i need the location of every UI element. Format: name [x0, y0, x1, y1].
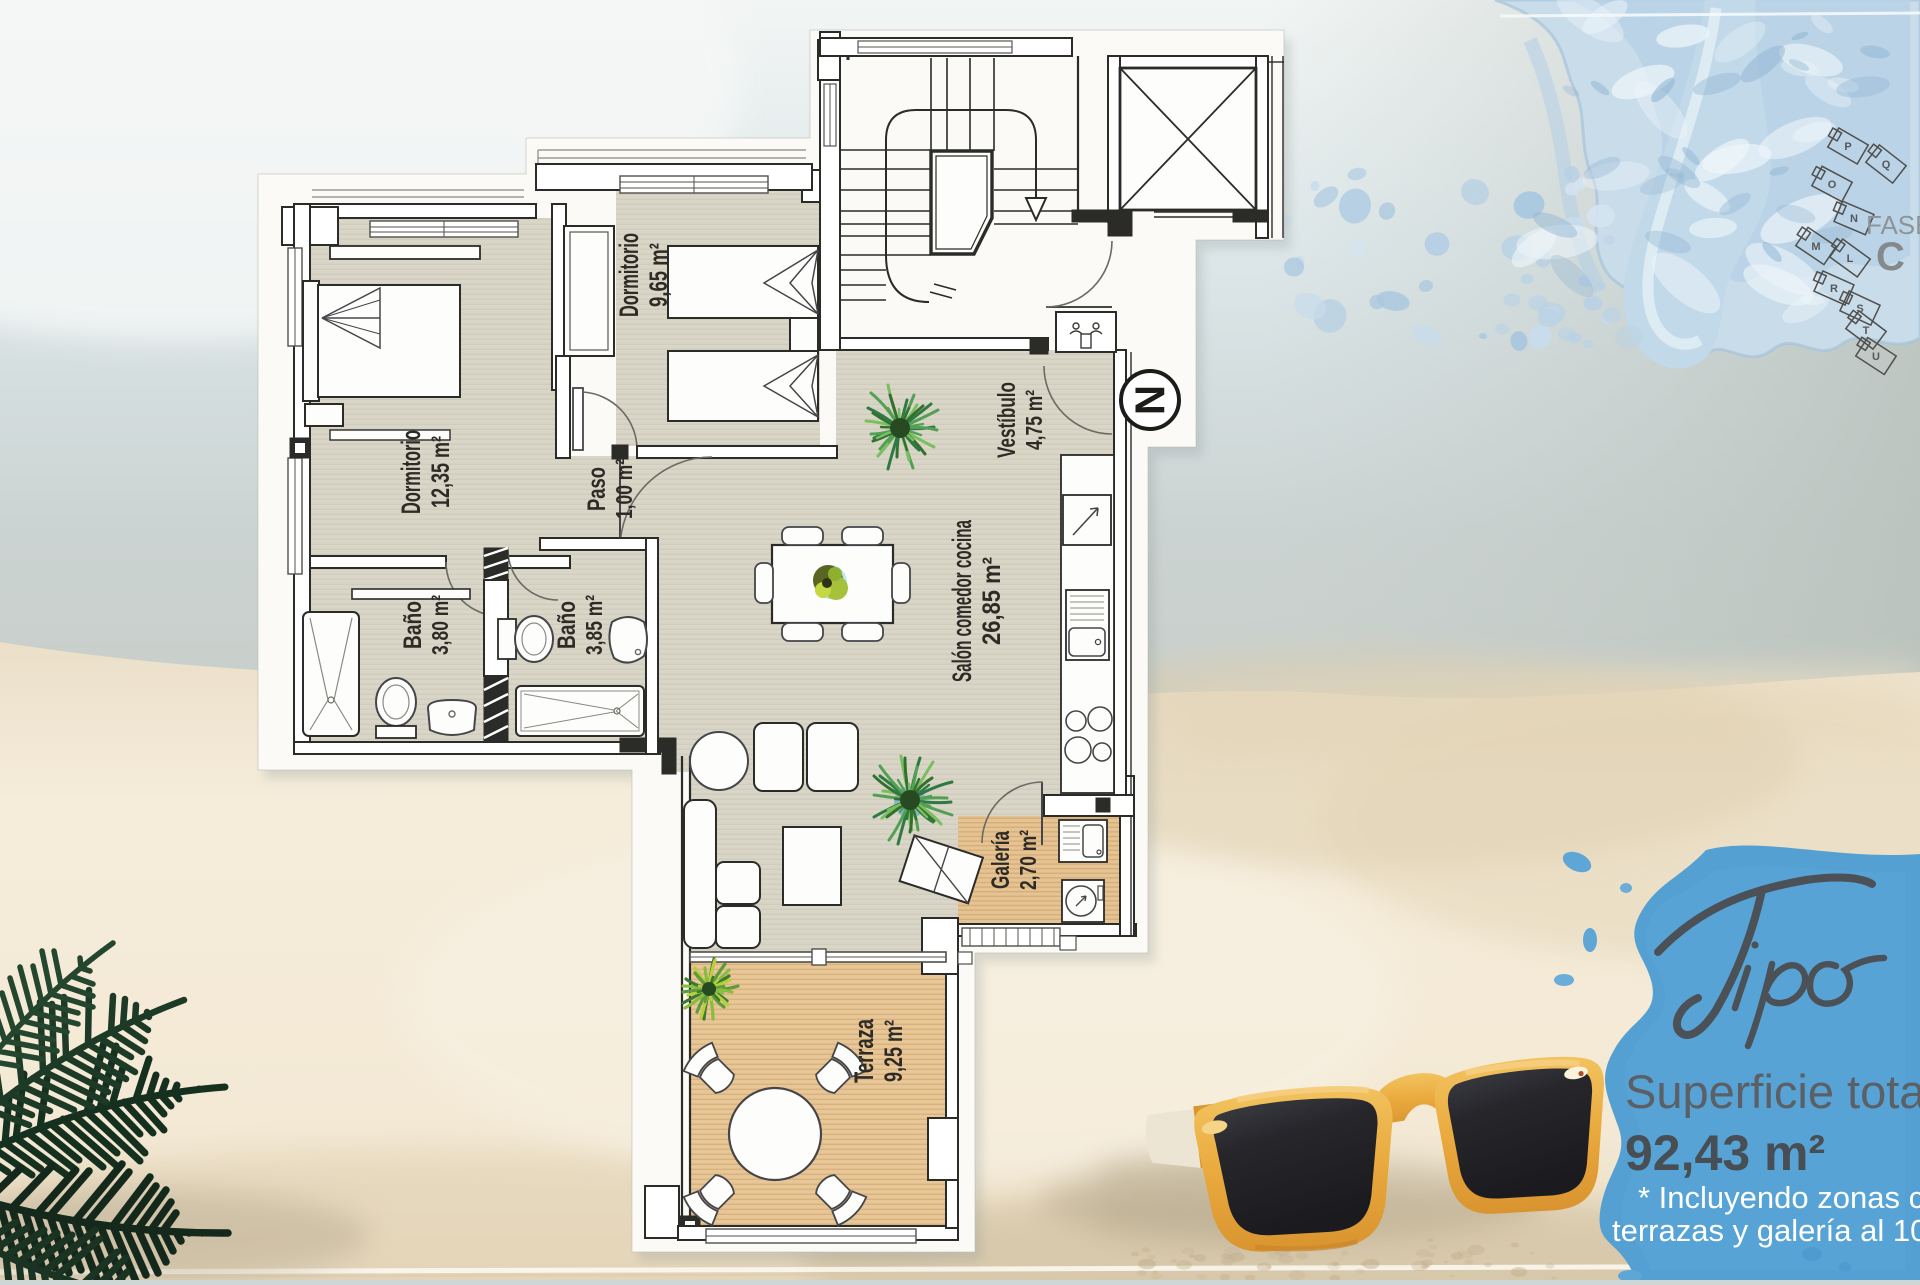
- svg-text:Dormitorio: Dormitorio: [396, 430, 426, 514]
- svg-text:T: T: [1863, 325, 1870, 337]
- svg-text:9,25 m²: 9,25 m²: [880, 1020, 908, 1082]
- svg-text:N: N: [1127, 385, 1174, 415]
- svg-text:4,75 m²: 4,75 m²: [1021, 390, 1047, 450]
- svg-text:2,70 m²: 2,70 m²: [1015, 830, 1041, 890]
- svg-text:Terraza: Terraza: [849, 1018, 879, 1083]
- svg-text:N: N: [1850, 213, 1858, 225]
- svg-text:92,43 m²: 92,43 m²: [1625, 1125, 1825, 1181]
- svg-text:Paso: Paso: [583, 467, 611, 511]
- svg-text:U: U: [1872, 351, 1880, 363]
- svg-text:Baño: Baño: [399, 601, 427, 649]
- svg-text:3,85 m²: 3,85 m²: [581, 595, 607, 655]
- svg-text:12,35 m²: 12,35 m²: [427, 436, 455, 508]
- svg-text:Dormitorio: Dormitorio: [614, 233, 644, 317]
- svg-text:3,80 m²: 3,80 m²: [427, 595, 453, 655]
- svg-text:26,85 m²: 26,85 m²: [978, 557, 1006, 645]
- svg-text:* Incluyendo zonas comunes: * Incluyendo zonas comunes: [1638, 1180, 1920, 1215]
- svg-text:R: R: [1830, 283, 1838, 295]
- svg-text:O: O: [1828, 179, 1837, 191]
- svg-text:Superficie total: Superficie total: [1625, 1065, 1920, 1118]
- svg-text:C: C: [1876, 235, 1905, 279]
- svg-text:S: S: [1856, 303, 1863, 315]
- svg-text:Vestíbulo: Vestíbulo: [993, 382, 1021, 458]
- svg-text:L: L: [1847, 253, 1854, 265]
- svg-text:Galería: Galería: [987, 830, 1015, 889]
- svg-text:9,65 m²: 9,65 m²: [645, 243, 673, 307]
- svg-text:M: M: [1811, 241, 1820, 253]
- svg-text:Baño: Baño: [553, 601, 581, 649]
- svg-text:terrazas y galería al 100%: terrazas y galería al 100%: [1612, 1213, 1920, 1248]
- svg-text:1,00 m²: 1,00 m²: [611, 459, 637, 519]
- svg-text:P: P: [1844, 141, 1851, 153]
- svg-text:Q: Q: [1882, 159, 1891, 171]
- svg-text:Salón comedor cocina: Salón comedor cocina: [947, 519, 977, 682]
